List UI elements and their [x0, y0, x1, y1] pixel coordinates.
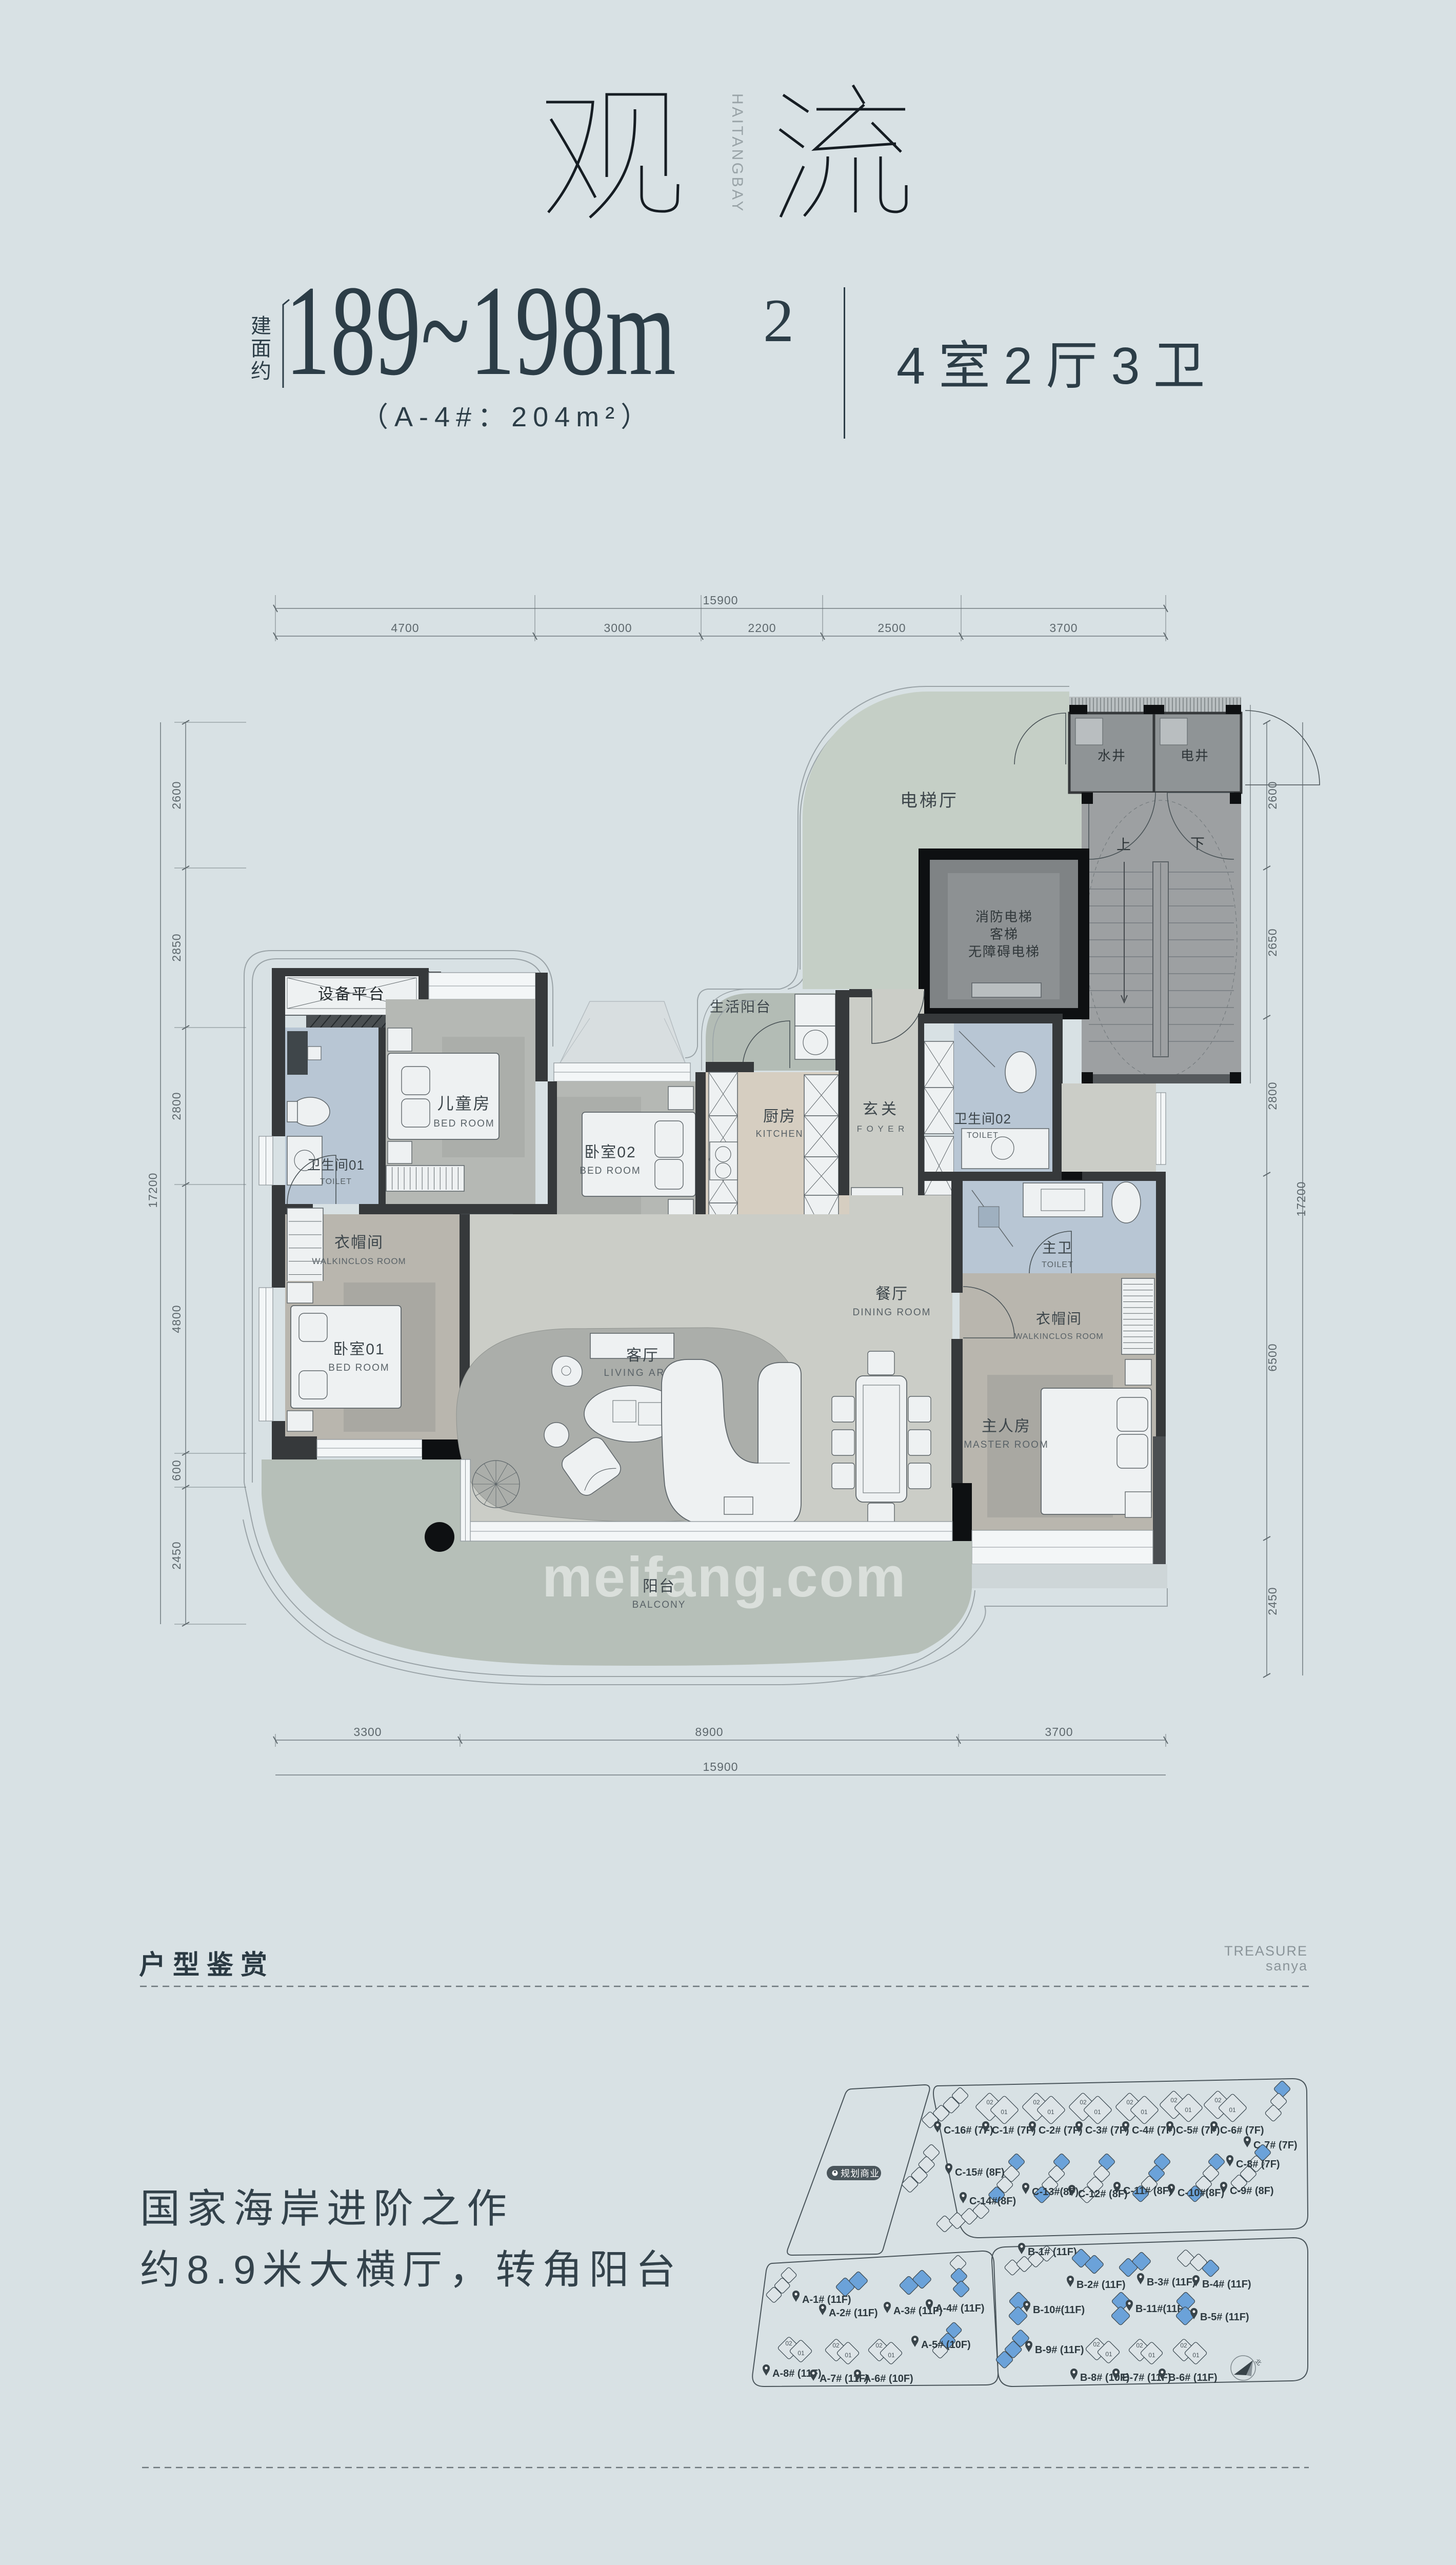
svg-text:01: 01 — [888, 2352, 895, 2359]
svg-text:3000: 3000 — [604, 621, 632, 635]
svg-text:01: 01 — [1105, 2351, 1112, 2358]
svg-text:B-2# (11F): B-2# (11F) — [1076, 2279, 1126, 2291]
svg-text:TOILET: TOILET — [1042, 1260, 1073, 1269]
svg-text:衣帽间: 衣帽间 — [334, 1234, 384, 1251]
svg-text:上: 上 — [1116, 837, 1132, 853]
svg-text:02: 02 — [986, 2099, 993, 2106]
svg-text:BED ROOM: BED ROOM — [580, 1166, 641, 1176]
svg-text:17200: 17200 — [1294, 1181, 1308, 1217]
svg-text:主卫: 主卫 — [1042, 1240, 1073, 1256]
svg-text:客厅: 客厅 — [626, 1347, 659, 1364]
svg-text:15900: 15900 — [703, 594, 739, 607]
svg-text:02: 02 — [1180, 2342, 1187, 2349]
svg-text:C-11# (8F): C-11# (8F) — [1123, 2185, 1172, 2197]
svg-text:01: 01 — [1192, 2352, 1200, 2359]
svg-text:生活阳台: 生活阳台 — [710, 999, 771, 1015]
svg-text:客梯: 客梯 — [990, 926, 1019, 942]
svg-text:2200: 2200 — [748, 621, 776, 635]
svg-text:01: 01 — [1001, 2108, 1008, 2116]
svg-text:卧室02: 卧室02 — [584, 1144, 636, 1161]
svg-text:02: 02 — [832, 2342, 840, 2349]
svg-text:01: 01 — [1185, 2106, 1192, 2114]
svg-text:01: 01 — [1148, 2352, 1155, 2359]
svg-text:B-5# (11F): B-5# (11F) — [1200, 2312, 1249, 2323]
svg-text:02: 02 — [1033, 2099, 1040, 2106]
svg-text:C-8# (7F): C-8# (7F) — [1236, 2159, 1280, 2170]
svg-text:8900: 8900 — [695, 1725, 723, 1739]
svg-text:餐厅: 餐厅 — [875, 1286, 908, 1303]
svg-text:规划商业: 规划商业 — [841, 2168, 880, 2179]
svg-text:2450: 2450 — [1266, 1587, 1279, 1615]
svg-text:WALKINCLOS ROOM: WALKINCLOS ROOM — [1014, 1332, 1104, 1341]
svg-text:02: 02 — [875, 2342, 883, 2349]
svg-text:TOILET: TOILET — [967, 1131, 999, 1140]
svg-text:A-2# (11F): A-2# (11F) — [829, 2307, 878, 2319]
svg-text:01: 01 — [1141, 2108, 1148, 2116]
svg-text:B-1# (11F): B-1# (11F) — [1028, 2246, 1077, 2258]
svg-text:3700: 3700 — [1045, 1725, 1073, 1739]
svg-text:A-4# (11F): A-4# (11F) — [935, 2303, 985, 2314]
svg-text:2500: 2500 — [877, 621, 906, 635]
svg-text:C-6# (7F): C-6# (7F) — [1220, 2125, 1264, 2136]
svg-text:WALKINCLOS ROOM: WALKINCLOS ROOM — [312, 1256, 406, 1266]
svg-text:C-13#(8F): C-13#(8F) — [1032, 2186, 1079, 2198]
svg-text:02: 02 — [1170, 2097, 1178, 2104]
svg-text:水井: 水井 — [1098, 748, 1126, 763]
svg-text:4700: 4700 — [391, 621, 419, 635]
svg-text:2850: 2850 — [170, 933, 183, 961]
svg-text:阳台: 阳台 — [643, 1578, 675, 1595]
svg-text:02: 02 — [785, 2340, 792, 2347]
svg-text:01: 01 — [1047, 2108, 1054, 2116]
svg-text:C-15# (8F): C-15# (8F) — [955, 2167, 1005, 2178]
svg-text:A-7# (11F): A-7# (11F) — [820, 2373, 869, 2384]
svg-text:BED ROOM: BED ROOM — [328, 1363, 389, 1373]
svg-text:玄关: 玄关 — [863, 1101, 900, 1118]
svg-text:2800: 2800 — [170, 1092, 183, 1120]
svg-text:BALCONY: BALCONY — [632, 1600, 686, 1610]
svg-text:3700: 3700 — [1049, 621, 1078, 635]
svg-text:A-6# (10F): A-6# (10F) — [864, 2373, 913, 2384]
svg-text:卧室01: 卧室01 — [333, 1341, 385, 1358]
svg-text:2800: 2800 — [1266, 1081, 1279, 1110]
svg-text:01: 01 — [1229, 2106, 1236, 2114]
svg-text:2650: 2650 — [1266, 928, 1279, 956]
svg-text:设备平台: 设备平台 — [318, 986, 386, 1003]
svg-text:B-6# (11F): B-6# (11F) — [1168, 2372, 1218, 2383]
svg-text:02: 02 — [1093, 2341, 1100, 2348]
svg-text:01: 01 — [797, 2350, 805, 2357]
svg-text:C-12# (8F): C-12# (8F) — [1078, 2188, 1128, 2200]
svg-text:卫生间02: 卫生间02 — [954, 1111, 1011, 1127]
svg-text:MASTER ROOM: MASTER ROOM — [964, 1439, 1049, 1450]
svg-text:DINING ROOM: DINING ROOM — [853, 1307, 931, 1318]
svg-text:厨房: 厨房 — [763, 1108, 796, 1125]
svg-text:A-1# (11F): A-1# (11F) — [802, 2294, 851, 2305]
svg-text:B-10#(11F): B-10#(11F) — [1033, 2304, 1085, 2316]
svg-text:02: 02 — [1126, 2099, 1133, 2106]
svg-text:2450: 2450 — [170, 1541, 183, 1569]
svg-text:01: 01 — [845, 2352, 852, 2359]
svg-text:01: 01 — [1094, 2108, 1101, 2116]
svg-text:电井: 电井 — [1181, 748, 1209, 763]
svg-text:A-5# (10F): A-5# (10F) — [921, 2339, 971, 2351]
svg-text:B-9# (11F): B-9# (11F) — [1035, 2344, 1084, 2356]
svg-text:衣帽间: 衣帽间 — [1036, 1311, 1082, 1327]
svg-text:17200: 17200 — [146, 1173, 159, 1208]
svg-text:C-9# (8F): C-9# (8F) — [1230, 2185, 1274, 2197]
svg-text:B-4# (11F): B-4# (11F) — [1202, 2279, 1251, 2290]
svg-text:02: 02 — [1080, 2099, 1087, 2106]
svg-text:KITCHEN: KITCHEN — [755, 1129, 803, 1139]
svg-text:15900: 15900 — [703, 1760, 739, 1773]
svg-text:电梯厅: 电梯厅 — [900, 791, 959, 811]
svg-text:消防电梯: 消防电梯 — [975, 909, 1033, 924]
svg-text:3300: 3300 — [353, 1725, 382, 1739]
svg-text:BED ROOM: BED ROOM — [433, 1118, 494, 1129]
svg-text:600: 600 — [170, 1459, 183, 1481]
svg-text:02: 02 — [1214, 2097, 1222, 2104]
svg-text:儿童房: 儿童房 — [437, 1094, 491, 1113]
svg-text:2600: 2600 — [170, 781, 183, 809]
svg-text:主人房: 主人房 — [982, 1418, 1031, 1435]
svg-text:B-3# (11F): B-3# (11F) — [1147, 2277, 1196, 2288]
svg-text:2600: 2600 — [1266, 781, 1279, 809]
svg-text:无障碍电梯: 无障碍电梯 — [968, 944, 1040, 959]
svg-text:F O Y E R: F O Y E R — [857, 1124, 906, 1134]
svg-text:C-14#(8F): C-14#(8F) — [969, 2196, 1016, 2207]
svg-text:meifang.com: meifang.com — [542, 1546, 907, 1609]
svg-text:6500: 6500 — [1266, 1343, 1279, 1371]
svg-text:4800: 4800 — [170, 1305, 183, 1333]
svg-text:02: 02 — [1136, 2342, 1143, 2349]
svg-text:C-10#(8F): C-10#(8F) — [1178, 2187, 1224, 2199]
